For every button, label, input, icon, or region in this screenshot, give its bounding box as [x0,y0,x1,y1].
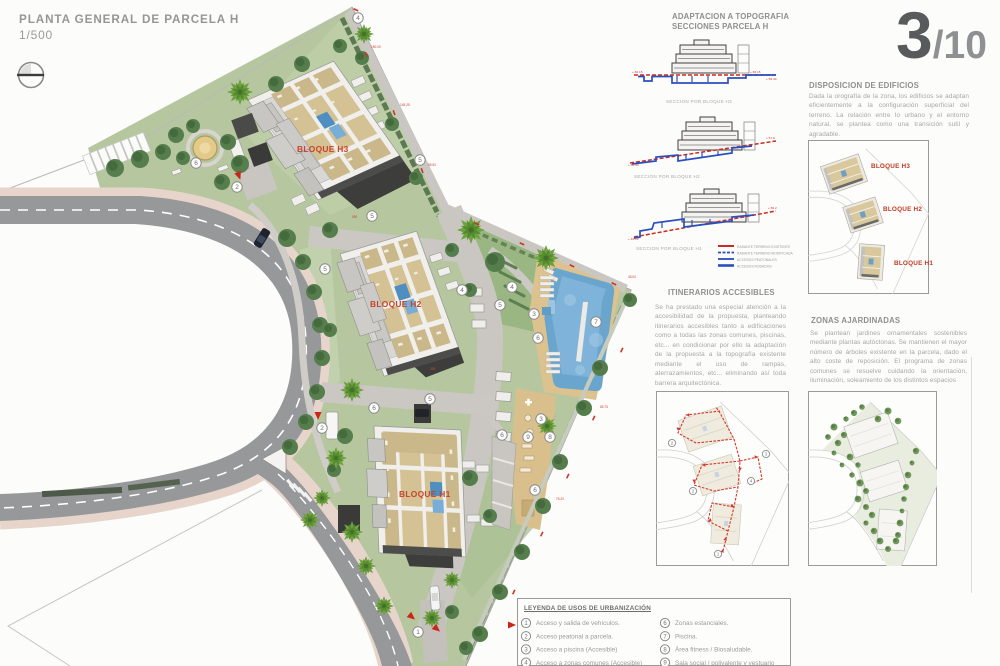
svg-text:+ 60.15: + 60.15 [632,70,643,74]
svg-text:BLOQUE H3: BLOQUE H3 [297,144,349,154]
svg-text:4: 4 [510,284,514,291]
svg-text:2: 2 [671,441,674,446]
svg-text:75.20: 75.20 [556,497,564,501]
svg-text:Zonas estanciales.: Zonas estanciales. [675,620,729,627]
svg-text:5: 5 [498,302,502,309]
svg-text:550: 550 [352,215,358,219]
svg-text:4: 4 [750,479,753,484]
svg-text:+ 59.40: + 59.40 [766,77,777,81]
svg-text:+ 57.8: + 57.8 [766,136,775,140]
svg-text:145.25: 145.25 [400,103,410,107]
svg-text:Área fitness / Biosaludable.: Área fitness / Biosaludable. [675,645,753,654]
svg-text:+ 52.30: + 52.30 [628,163,639,167]
svg-text:Sala social / polivalente y ve: Sala social / polivalente y vestuario [675,660,775,666]
svg-text:45.00: 45.00 [628,275,636,279]
svg-text:150.00: 150.00 [371,45,381,49]
svg-text:6: 6 [533,487,537,494]
svg-text:RASANTE TERRENO EXISTENTE: RASANTE TERRENO EXISTENTE [737,245,791,249]
svg-text:5: 5 [418,157,422,164]
svg-text:Acceso y salida de vehículos.: Acceso y salida de vehículos. [536,620,620,627]
svg-text:6: 6 [536,335,540,342]
svg-text:6: 6 [500,432,504,439]
svg-text:2: 2 [235,184,239,191]
svg-text:BLOQUE H1: BLOQUE H1 [399,489,451,499]
svg-text:5: 5 [323,266,327,273]
svg-text:ACCESOS RODADOS: ACCESOS RODADOS [737,265,772,269]
svg-text:2: 2 [692,489,695,494]
svg-text:Acceso peatonal a parcela.: Acceso peatonal a parcela. [536,633,613,640]
svg-text:+ 49.10: + 49.10 [628,237,639,241]
svg-text:Acceso a piscina (Accesible): Acceso a piscina (Accesible) [536,647,617,654]
svg-text:Acceso a zonas comunes (Accesi: Acceso a zonas comunes (Accesible) [536,660,642,666]
svg-text:3: 3 [765,452,768,457]
svg-text:1: 1 [717,552,720,557]
svg-text:9: 9 [526,434,530,441]
svg-text:355: 355 [430,367,436,371]
svg-text:2: 2 [320,425,324,432]
svg-text:3: 3 [532,311,536,318]
svg-text:3: 3 [539,416,543,423]
svg-text:1: 1 [416,629,420,636]
svg-text:8: 8 [548,434,552,441]
svg-text:RASANTE TERRENO MODIFICADA: RASANTE TERRENO MODIFICADA [737,252,793,256]
svg-text:85.75: 85.75 [600,405,608,409]
svg-text:6: 6 [194,160,198,167]
svg-text:Piscina.: Piscina. [675,633,698,640]
svg-text:BLOQUE H2: BLOQUE H2 [370,299,422,309]
svg-text:ACCESOS PEATONALES: ACCESOS PEATONALES [737,258,778,262]
svg-text:5: 5 [428,396,432,403]
svg-text:+ 56.2: + 56.2 [768,206,777,210]
svg-text:4: 4 [356,15,360,22]
svg-text:4: 4 [460,287,464,294]
svg-text:95.50: 95.50 [428,163,436,167]
svg-text:+ 60.15: + 60.15 [750,70,761,74]
svg-text:6: 6 [372,405,376,412]
svg-text:5: 5 [370,213,374,220]
svg-text:7: 7 [594,319,598,326]
